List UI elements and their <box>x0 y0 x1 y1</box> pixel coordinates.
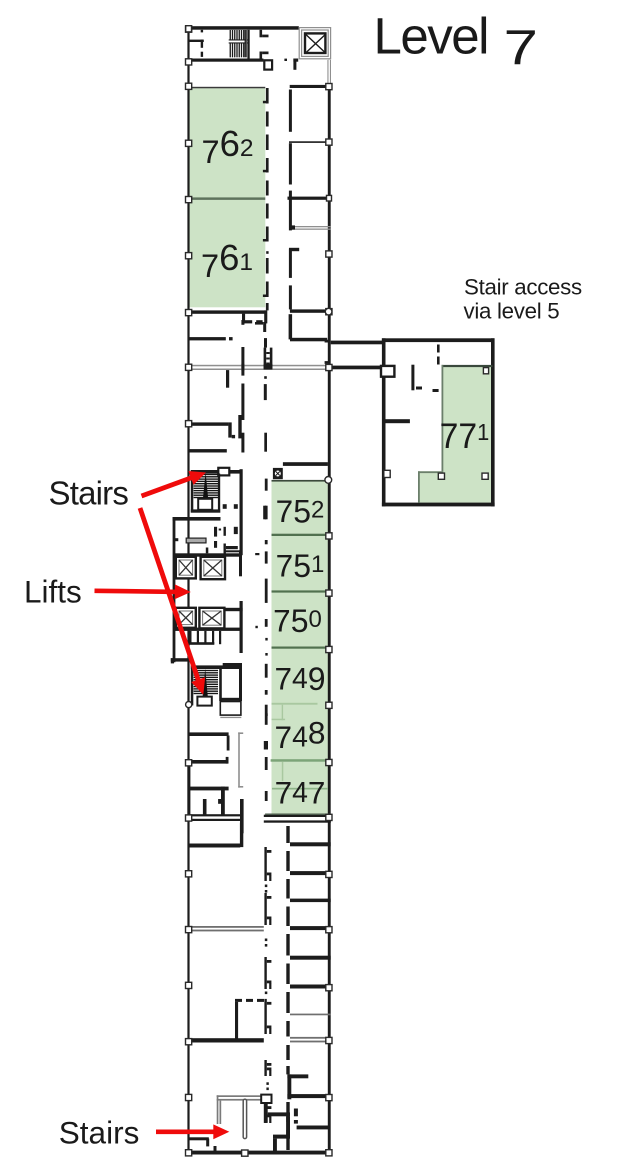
svg-text:Stairs: Stairs <box>59 1115 140 1151</box>
svg-text:Lifts: Lifts <box>24 573 82 609</box>
svg-text:Stairs: Stairs <box>49 474 129 511</box>
svg-text:749: 749 <box>274 660 325 697</box>
svg-text:via level 5: via level 5 <box>464 299 560 324</box>
svg-text:Stair access: Stair access <box>464 274 582 299</box>
svg-text:748: 748 <box>275 715 326 756</box>
svg-text:Level: Level <box>374 7 488 64</box>
svg-text:747: 747 <box>275 775 326 811</box>
svg-text:7: 7 <box>504 20 539 75</box>
